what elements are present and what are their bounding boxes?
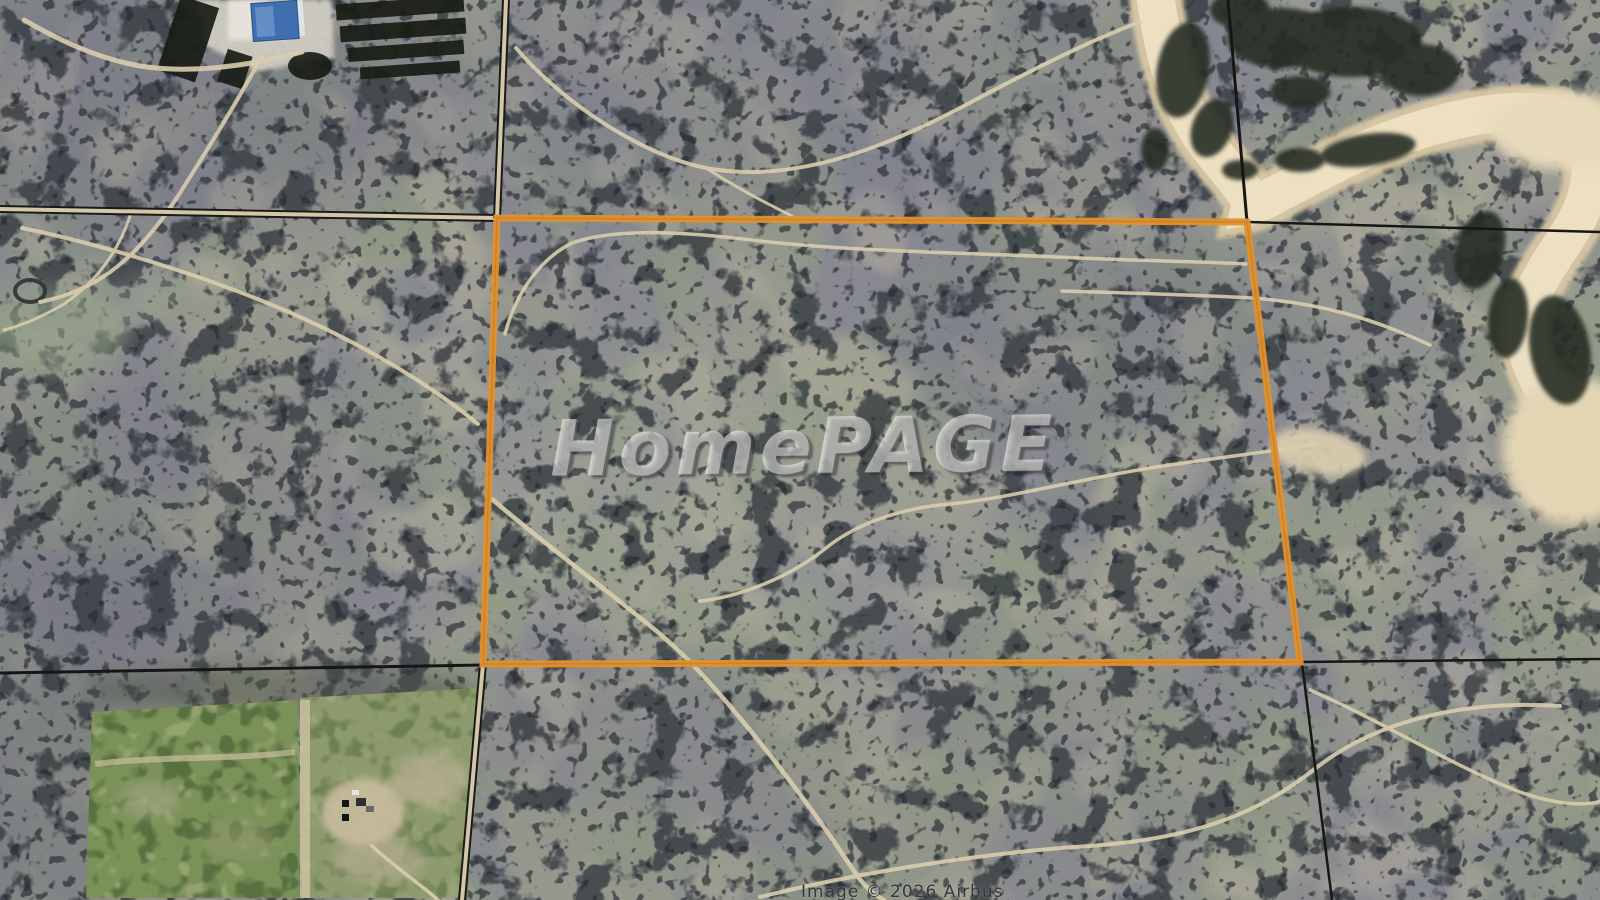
watermark-text: HomePAGE [552,401,1033,495]
imagery-attribution-text: Image © 2026 Airbus [801,882,1003,900]
farmstead [321,778,405,846]
satellite-map: HomePAGE Image © 2026 Airbus [0,0,1600,900]
blue-roof-building [251,0,306,42]
crop-fields [80,664,485,900]
